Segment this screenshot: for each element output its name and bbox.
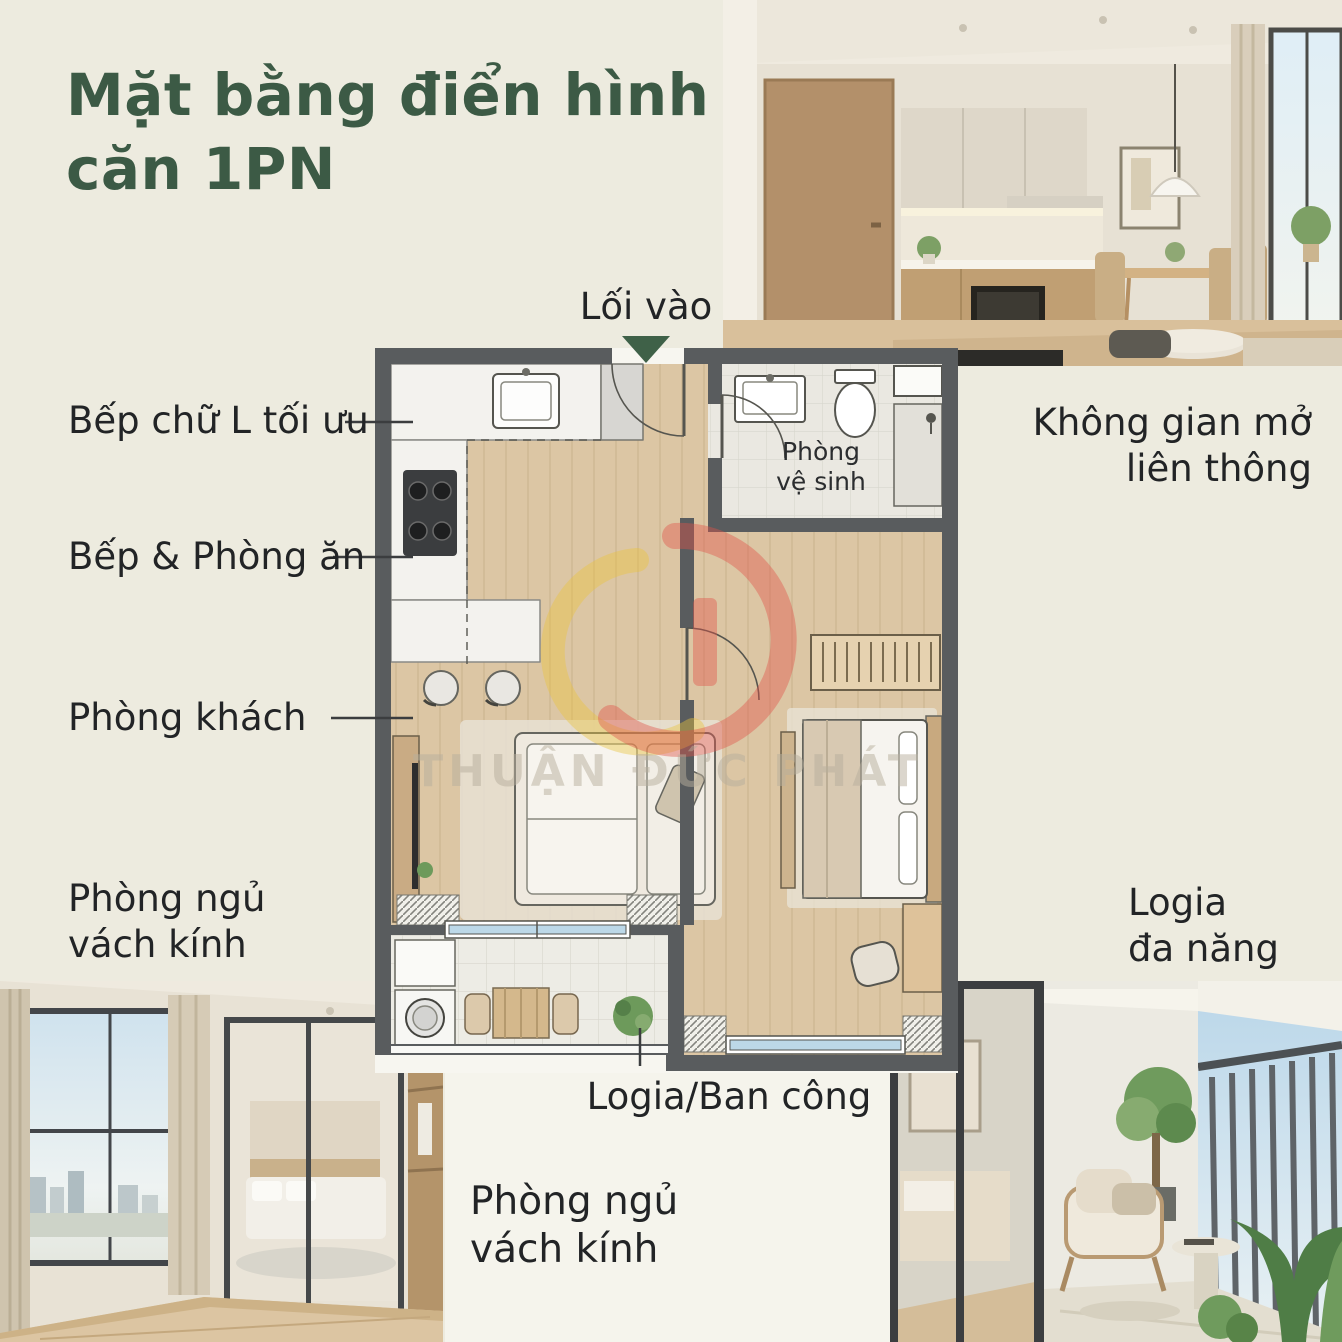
entrance-arrow-icon: [622, 336, 670, 363]
svg-text:vệ sinh: vệ sinh: [776, 467, 866, 496]
page-title-line2: căn 1PN: [66, 132, 726, 206]
floorplan-drawing: THUẬN ĐỨC PHÁT Phòng vệ sinh: [375, 348, 958, 1073]
floorplan-poster: THUẬN ĐỨC PHÁT Phòng vệ sinh Mặt bằng đi…: [0, 0, 1342, 1342]
svg-text:Phòng: Phòng: [782, 437, 860, 466]
page-title: Mặt bằng điển hình căn 1PN: [66, 58, 726, 206]
label-open-space: Không gian mở liên thông: [900, 400, 1312, 492]
photo-kitchen-dining: [723, 0, 1342, 366]
label-logia-multi: Logia đa năng: [1128, 880, 1279, 972]
bathroom-label: Phòng vệ sinh: [776, 437, 866, 496]
page-title-line1: Mặt bằng điển hình: [66, 58, 726, 132]
label-entrance: Lối vào: [546, 284, 746, 330]
label-living-room: Phòng khách: [68, 695, 306, 741]
label-bedroom-glass-bottom: Phòng ngủ vách kính: [470, 1178, 678, 1275]
label-logia-balcony: Logia/Ban công: [558, 1074, 900, 1120]
watermark-text: THUẬN ĐỨC PHÁT: [413, 744, 923, 797]
label-bedroom-glass-left: Phòng ngủ vách kính: [68, 876, 265, 968]
label-kitchen-dining: Bếp & Phòng ăn: [68, 534, 365, 580]
label-kitchen-l: Bếp chữ L tối ưu: [68, 398, 369, 444]
